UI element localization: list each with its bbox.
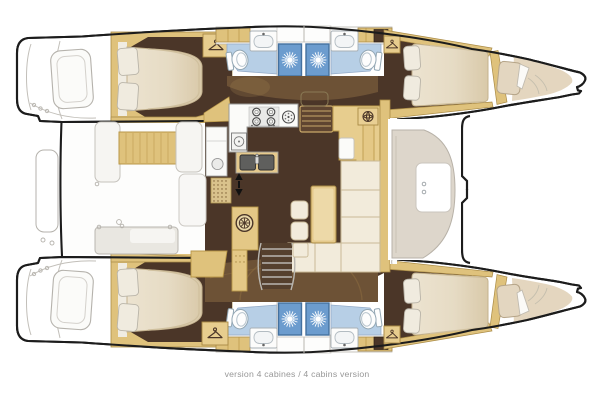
- svg-text:version 4 cabines / 4 cabins v: version 4 cabines / 4 cabins version: [225, 369, 370, 379]
